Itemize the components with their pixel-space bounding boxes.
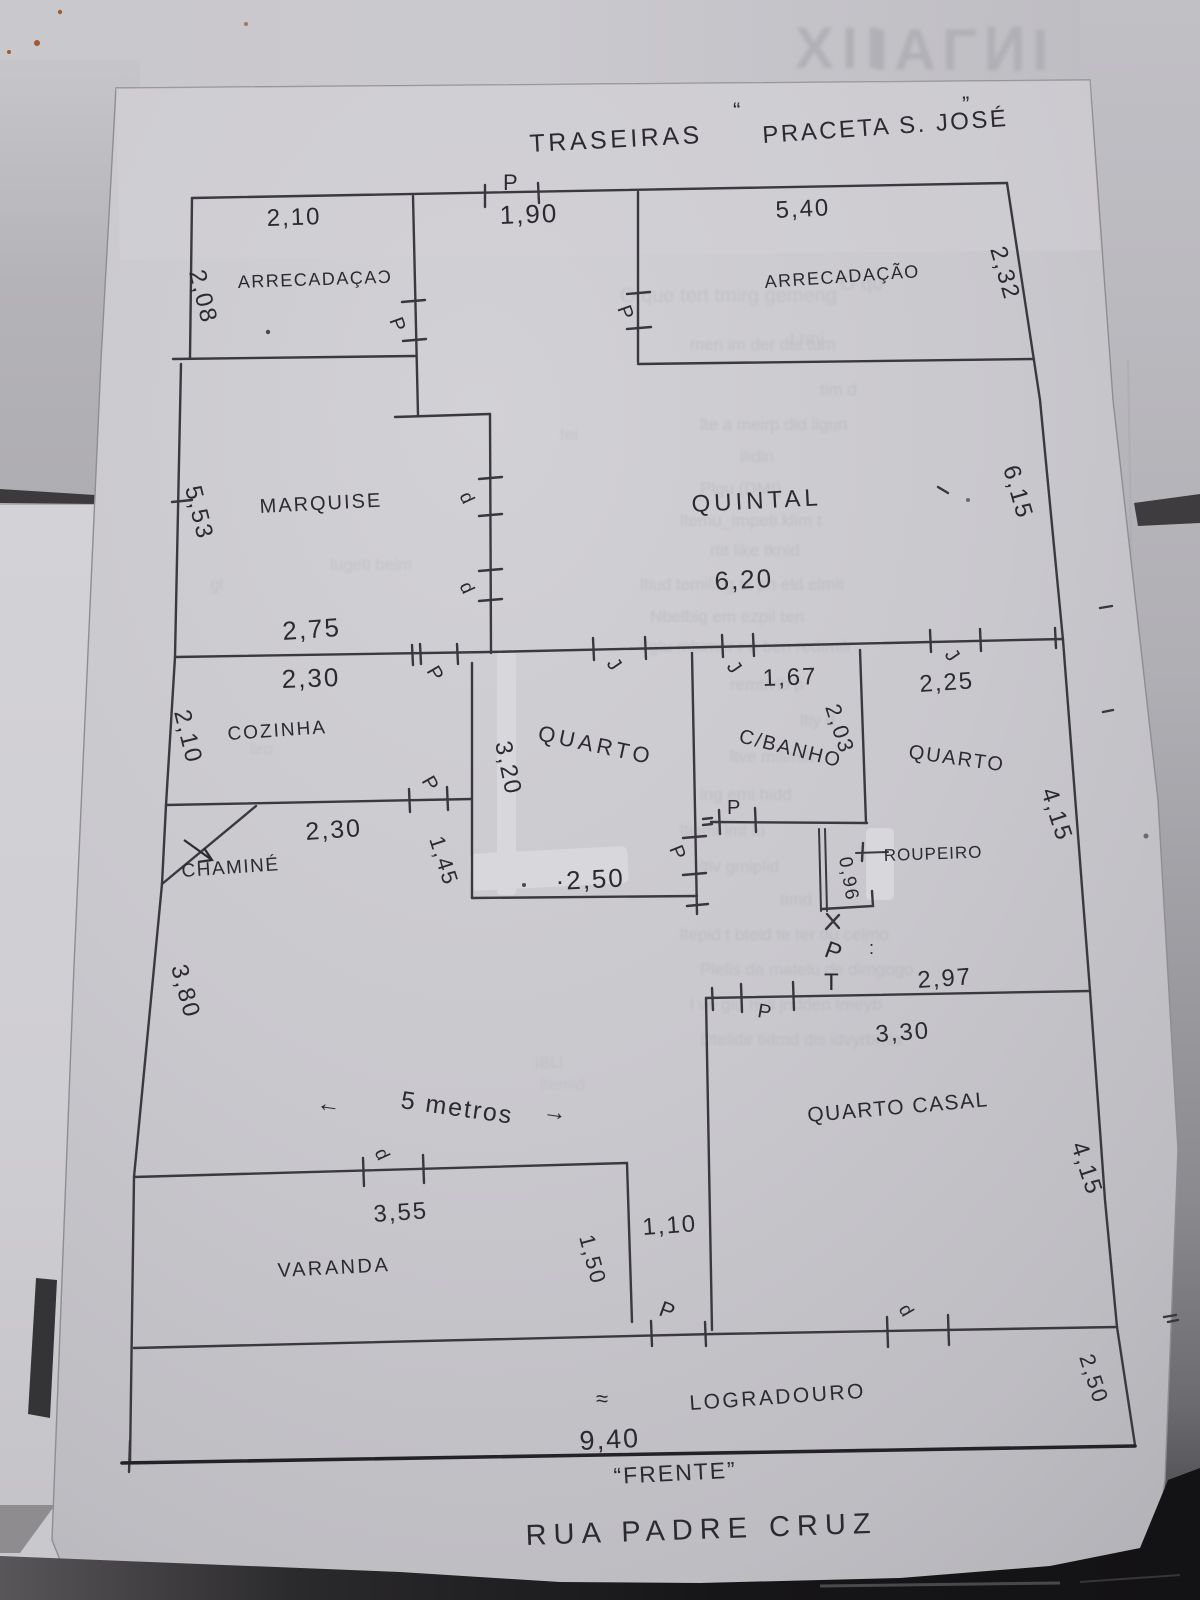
svg-text:ltiv gmiplid: ltiv gmiplid — [700, 857, 779, 876]
svg-text:3,30: 3,30 — [875, 1017, 931, 1048]
svg-text:1,10: 1,10 — [642, 1210, 698, 1241]
svg-text:2,75: 2,75 — [281, 612, 342, 646]
svg-text:←: ← — [315, 1089, 345, 1119]
svg-text:lng emi hidd: lng emi hidd — [700, 785, 792, 804]
svg-text:ilidin: ilidin — [740, 447, 774, 466]
svg-text:2,97: 2,97 — [917, 963, 973, 994]
svg-text:lugeti beim: lugeti beim — [330, 555, 412, 574]
svg-text:Dtelidir tidmd dis idvyrbmis: Dtelidir tidmd dis idvyrbmis — [700, 1030, 902, 1049]
svg-text:1,90: 1,90 — [499, 198, 559, 230]
svg-text:2,30: 2,30 — [304, 814, 362, 846]
svg-text:rtit like tknid: rtit like tknid — [710, 541, 800, 560]
svg-text:6,20: 6,20 — [714, 563, 774, 596]
svg-text:tei: tei — [560, 425, 578, 444]
svg-text:3,55: 3,55 — [373, 1197, 429, 1228]
svg-text::: : — [869, 938, 876, 958]
svg-text:1,67: 1,67 — [762, 663, 818, 692]
svg-text:T: T — [824, 969, 841, 996]
svg-text:IBLI: IBLI — [535, 1055, 563, 1072]
svg-text:ROUPEIRO: ROUPEIRO — [883, 843, 982, 865]
svg-text:→: → — [541, 1097, 571, 1127]
svg-text:t tmi: t tmi — [790, 329, 824, 349]
svg-text:tim d: tim d — [820, 380, 857, 399]
svg-text:2,10: 2,10 — [266, 203, 322, 232]
svg-text:Plelis da matelu de dimgogo: Plelis da matelu de dimgogo — [700, 960, 914, 979]
svg-text:”: ” — [962, 92, 971, 117]
svg-text:5,40: 5,40 — [775, 194, 831, 224]
svg-text:timd: timd — [780, 890, 812, 909]
svg-text:≈: ≈ — [596, 1386, 610, 1411]
svg-text:“: “ — [733, 98, 742, 123]
svg-text:lte a meirp did ligun: lte a meirp did ligun — [700, 415, 847, 434]
svg-text:2,30: 2,30 — [281, 662, 341, 694]
svg-text:ltemid: ltemid — [540, 1075, 585, 1094]
svg-text:9,40: 9,40 — [579, 1423, 641, 1456]
svg-text:IAΓͶI: IAΓͶI — [872, 18, 1054, 83]
svg-text:gl: gl — [210, 575, 223, 594]
svg-text:2,25: 2,25 — [919, 667, 975, 698]
svg-text:Nbelbig em ezpil ten: Nbelbig em ezpil ten — [650, 607, 804, 626]
svg-text:P: P — [503, 170, 520, 195]
svg-text:P: P — [727, 797, 742, 819]
svg-text:·2,50: ·2,50 — [555, 862, 626, 896]
svg-text:ltepid t bteid te ter du celmo: ltepid t bteid te ter du celmo — [680, 925, 889, 944]
